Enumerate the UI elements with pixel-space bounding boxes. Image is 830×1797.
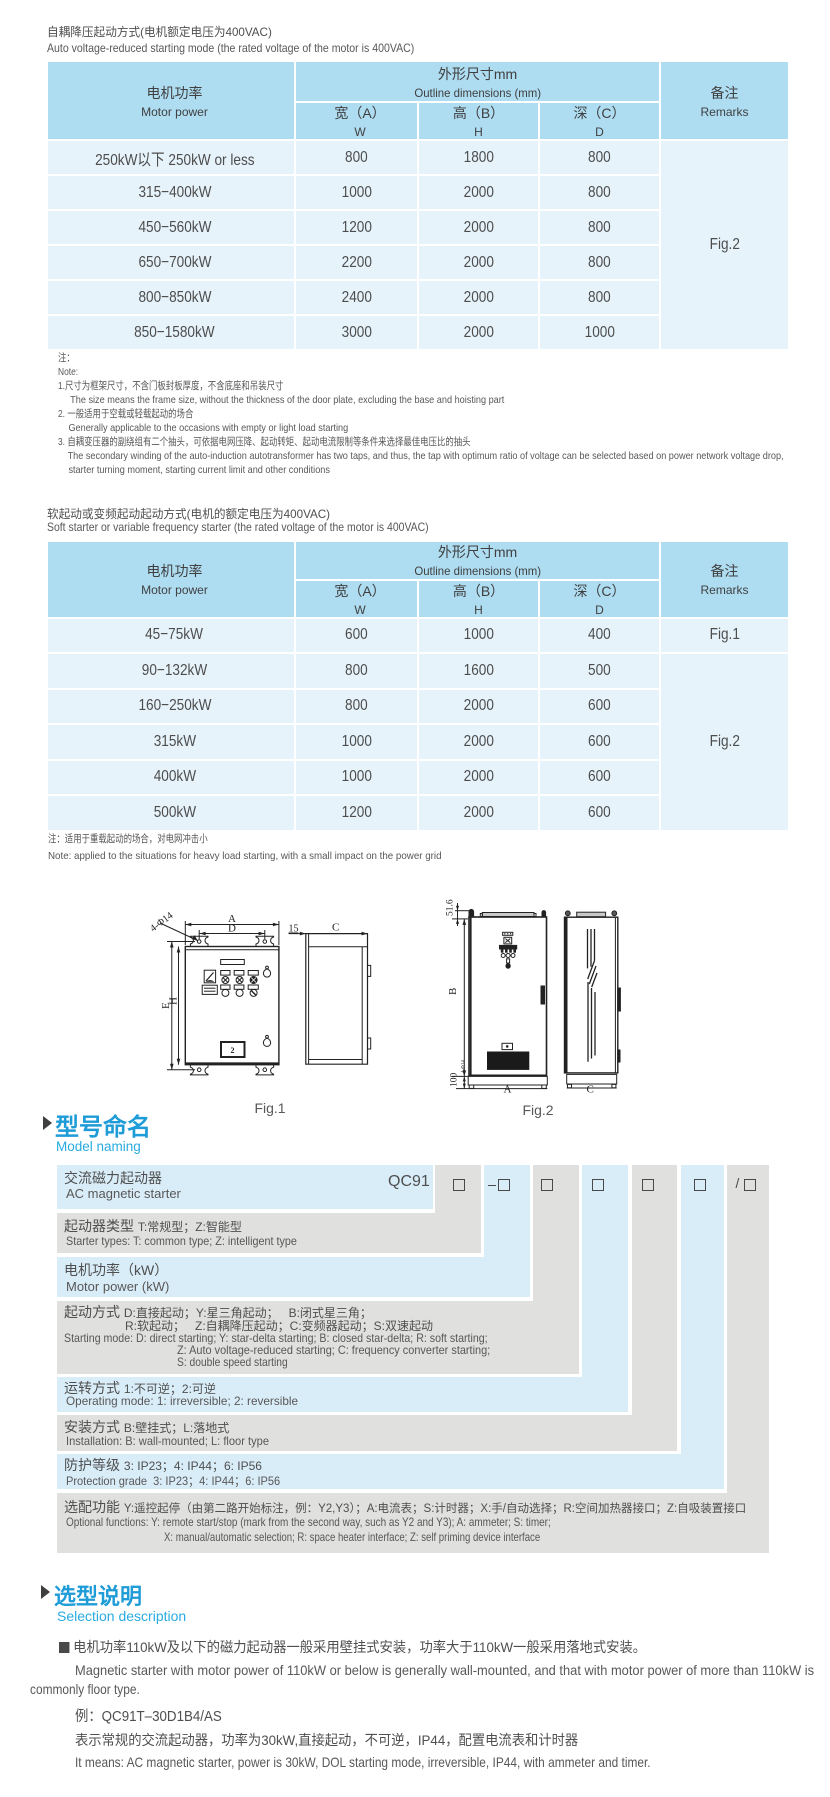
svg-text:15: 15 xyxy=(289,924,299,935)
svg-text:B: B xyxy=(447,988,459,995)
svg-text:C: C xyxy=(587,1084,594,1096)
svg-text:H: H xyxy=(168,997,180,1005)
svg-text:A: A xyxy=(504,1084,512,1096)
svg-text:D: D xyxy=(228,923,236,935)
svg-text:2: 2 xyxy=(231,1046,235,1055)
svg-text:51.6: 51.6 xyxy=(446,899,456,916)
svg-text:4-Φ14: 4-Φ14 xyxy=(462,1060,467,1073)
svg-text:100: 100 xyxy=(450,1073,460,1088)
svg-text:4-Φ14: 4-Φ14 xyxy=(148,910,175,934)
svg-text:C: C xyxy=(332,922,339,934)
